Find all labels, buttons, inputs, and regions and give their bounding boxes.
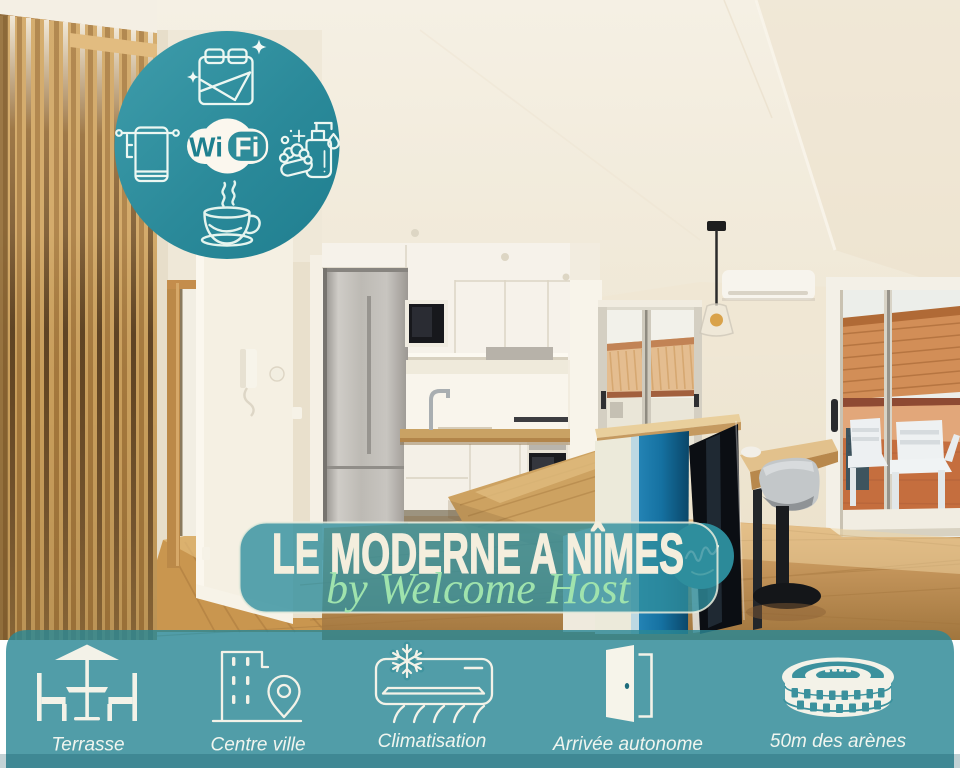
- svg-text:Wi: Wi: [189, 132, 223, 163]
- svg-text:Climatisation: Climatisation: [378, 731, 487, 752]
- svg-text:by Welcome Host: by Welcome Host: [326, 564, 632, 613]
- svg-text:Arrivée autonome: Arrivée autonome: [552, 734, 703, 755]
- svg-text:Terrasse: Terrasse: [51, 735, 124, 756]
- svg-text:50m des arènes: 50m des arènes: [770, 731, 907, 752]
- svg-text:Fi: Fi: [235, 132, 260, 163]
- svg-text:Centre ville: Centre ville: [210, 735, 305, 756]
